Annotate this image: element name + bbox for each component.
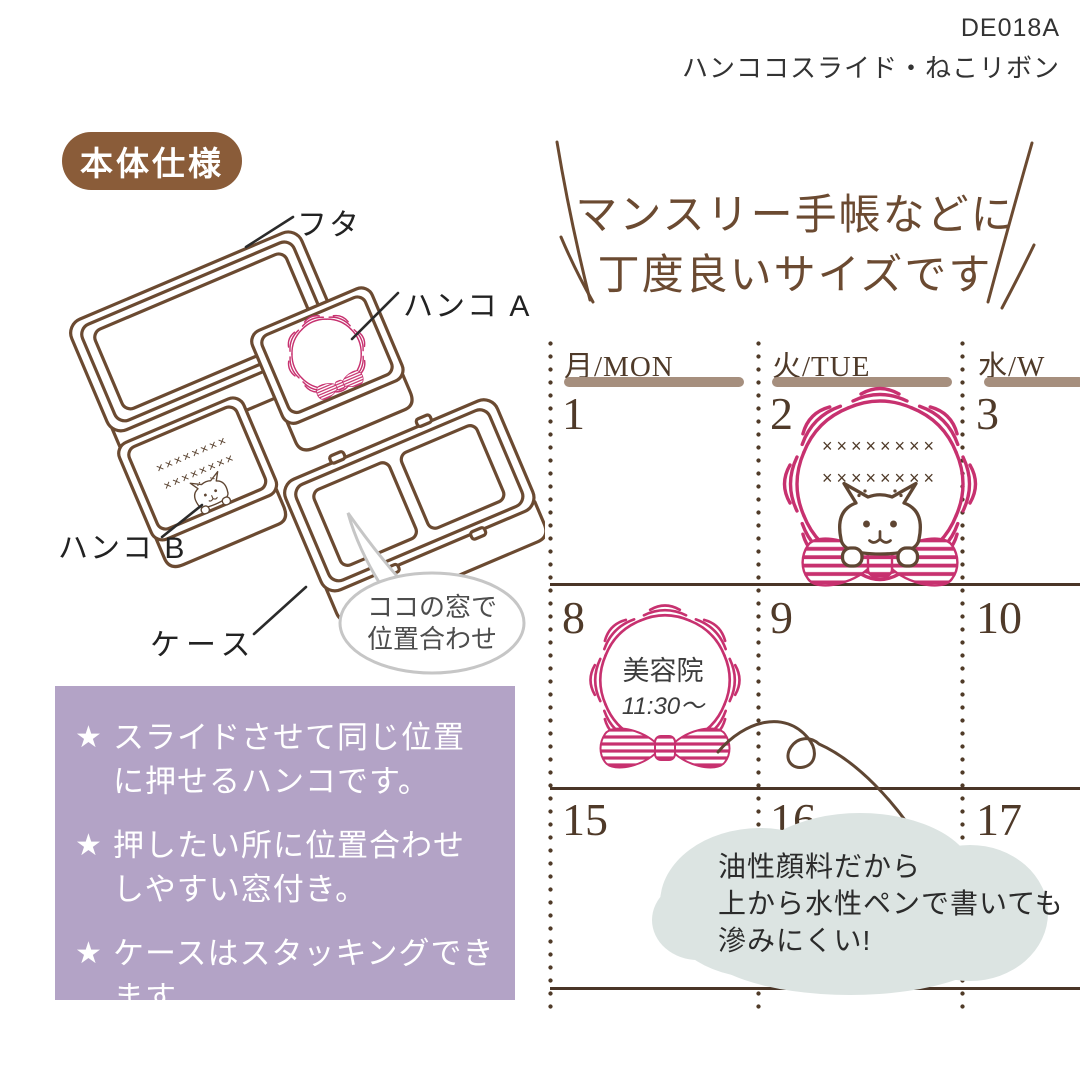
case-illustration: ×××××××× ×××××××× ココの窓で 位置合わせ bbox=[30, 185, 545, 685]
ink-note-line2: 上から水性ペンで書いても bbox=[718, 882, 1064, 922]
feature-3-line1: ケースはスタッキングできます。 bbox=[113, 936, 495, 1015]
spec-badge-label: 本体仕様 bbox=[80, 137, 224, 185]
label-lid: フタ bbox=[297, 200, 361, 244]
ink-note-line1: 油性顔料だから bbox=[718, 845, 921, 885]
feature-1-line1: スライドさせて同じ位置 bbox=[113, 720, 465, 755]
feature-item-3: ★ ケースはスタッキングできます。 bbox=[75, 932, 499, 1020]
feature-2-line1: 押したい所に位置合わせ bbox=[113, 828, 465, 863]
bubble-line1: ココの窓で bbox=[367, 592, 497, 622]
feature-item-2: ★ 押したい所に位置合わせ しやすい窓付き。 bbox=[75, 824, 499, 912]
ink-note-line3: 滲みにくい! bbox=[718, 919, 871, 959]
star-icon: ★ bbox=[75, 825, 103, 868]
feature-item-1: ★ スライドさせて同じ位置 に押せるハンコです。 bbox=[75, 716, 499, 804]
product-code: DE018A bbox=[961, 14, 1060, 43]
star-icon: ★ bbox=[75, 717, 103, 760]
emphasis-slash-marks bbox=[540, 130, 1080, 330]
feature-1-line2: に押せるハンコです。 bbox=[113, 764, 430, 799]
feature-2-line2: しやすい窓付き。 bbox=[113, 872, 367, 907]
features-box: ★ スライドさせて同じ位置 に押せるハンコです。 ★ 押したい所に位置合わせ し… bbox=[55, 686, 515, 1000]
spec-badge: 本体仕様 bbox=[62, 132, 242, 190]
product-poster: DE018A ハンココスライド・ねこリボン 本体仕様 bbox=[0, 0, 1080, 1080]
bubble-line2: 位置合わせ bbox=[367, 624, 497, 654]
label-stamp-a: ハンコ A bbox=[403, 281, 531, 325]
label-case: ケース bbox=[150, 620, 257, 664]
label-stamp-b: ハンコ B bbox=[58, 523, 186, 567]
product-name: ハンココスライド・ねこリボン bbox=[682, 48, 1060, 85]
star-icon: ★ bbox=[75, 933, 103, 976]
